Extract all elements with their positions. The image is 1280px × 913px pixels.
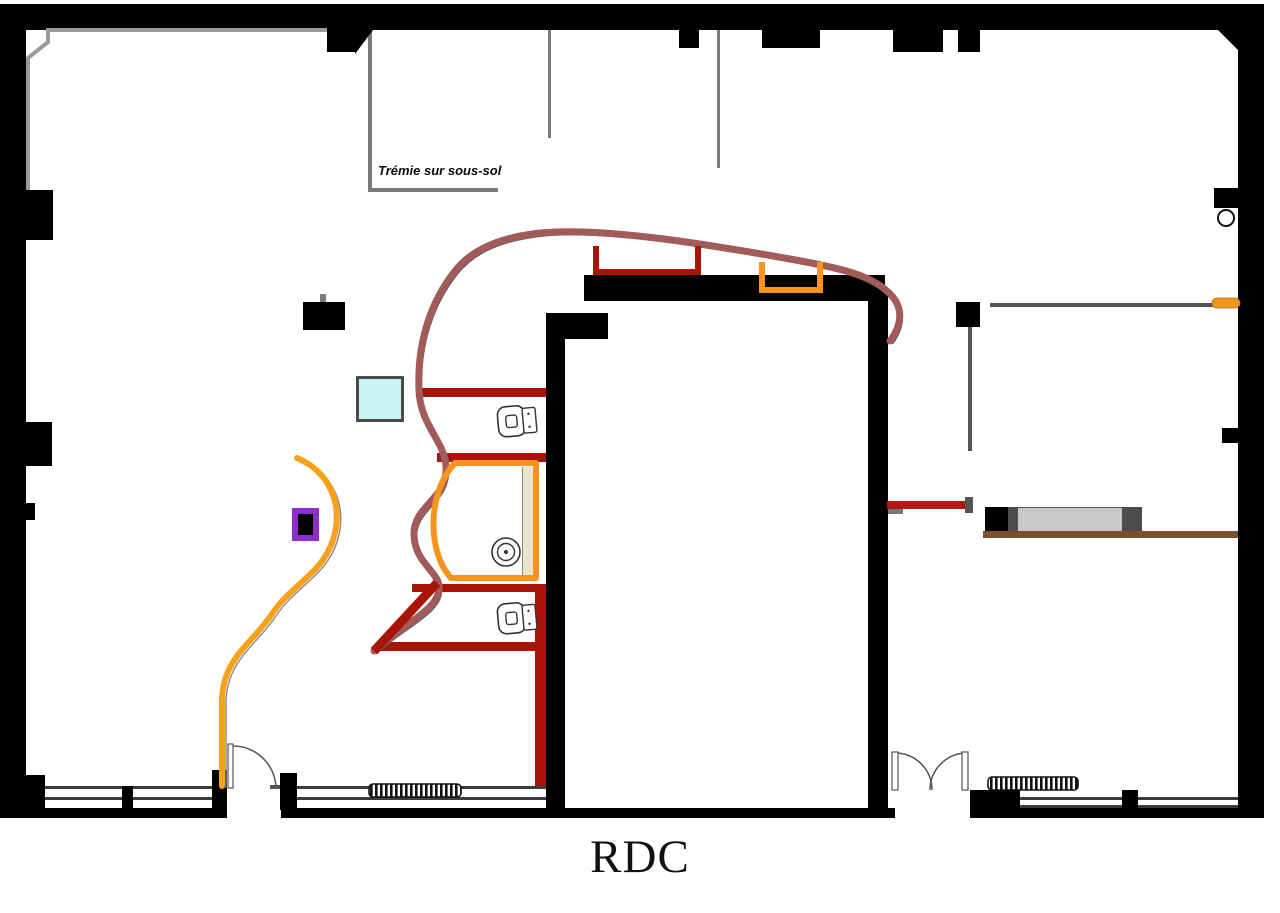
orange-curve-outline xyxy=(226,460,341,788)
top-right-chamfer xyxy=(1218,30,1240,52)
dark-red-bracket xyxy=(596,246,698,272)
floor-plan-rdc: Trémie sur sous-sol RDC xyxy=(0,0,1280,913)
toilet-icon-2 xyxy=(497,601,537,634)
toilet-icon-1 xyxy=(497,404,537,437)
door-knob-circle xyxy=(1218,210,1234,226)
maroon-curve-top xyxy=(455,232,900,341)
orange-pill-marker xyxy=(1212,298,1240,308)
radiator-grille-1 xyxy=(369,784,461,797)
plan-overlay xyxy=(0,0,1280,913)
single-door xyxy=(228,744,280,789)
maroon-curve-outline xyxy=(377,235,903,654)
top-step-chamfer xyxy=(355,30,373,54)
wall-trim-line xyxy=(28,30,327,190)
cubicle-orange-outline xyxy=(433,463,536,578)
double-door xyxy=(892,752,968,790)
orange-curve xyxy=(222,458,337,786)
maroon-curve-left xyxy=(374,271,455,651)
sink-icon xyxy=(492,538,520,566)
tremie-label: Trémie sur sous-sol xyxy=(378,163,501,178)
wc-diagonal-wall xyxy=(374,583,437,651)
floor-title: RDC xyxy=(560,830,720,884)
radiator-grille-2 xyxy=(988,777,1078,790)
